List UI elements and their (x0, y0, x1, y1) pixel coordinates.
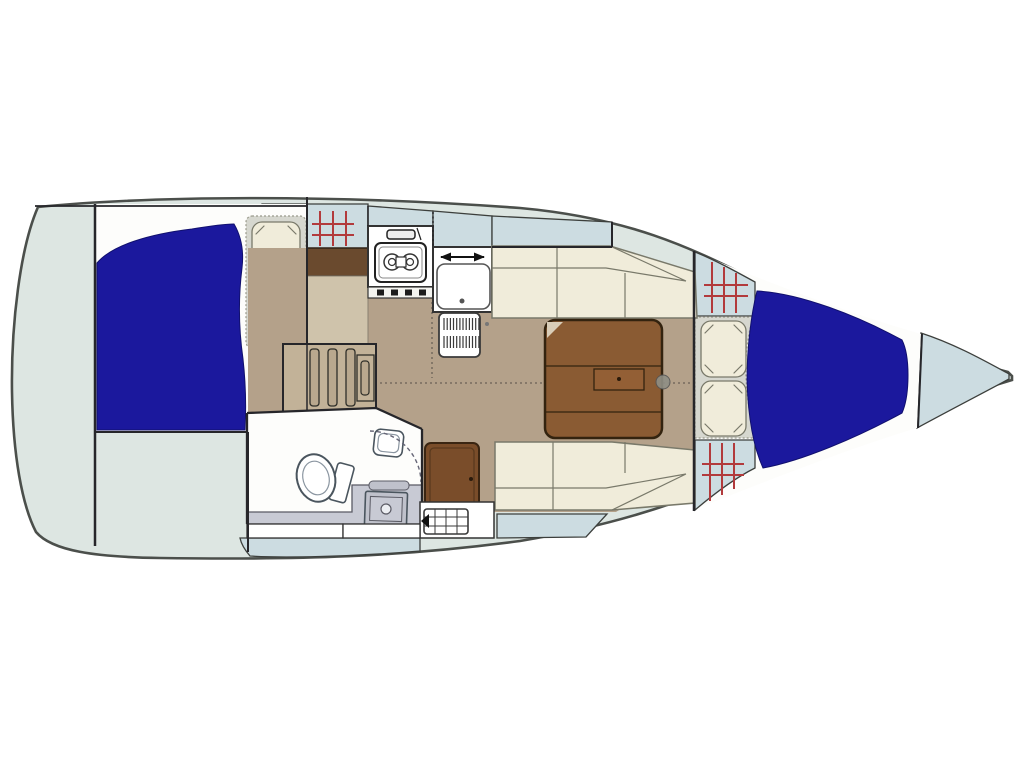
salon-table (545, 320, 670, 438)
deck-band-below-settee (497, 514, 607, 538)
boat-floor-plan (0, 0, 1024, 768)
v-berth-pillow-2 (701, 381, 746, 436)
aft-cabin-entry-step (307, 276, 368, 344)
galley-counter-bar (307, 248, 368, 276)
deck-band-over-sink (433, 211, 492, 247)
table-latch (656, 375, 670, 389)
settee-bottom (495, 442, 695, 510)
head-shower (373, 429, 405, 458)
deck-band-over-settee (492, 216, 612, 247)
sink-cover-knob (460, 299, 465, 304)
aft-double-berth (97, 224, 246, 430)
counter-lip (369, 481, 409, 490)
galley-hatch-panel (307, 204, 368, 250)
v-berth (747, 291, 908, 468)
head-sink (364, 491, 407, 526)
head-door-handle (469, 477, 473, 481)
step-slat-2 (328, 349, 337, 406)
anchor-locker (917, 333, 1009, 428)
forward-cabin (695, 252, 922, 510)
companionway-steps (283, 344, 376, 412)
latch-dot (485, 322, 489, 326)
step-slat-1 (310, 349, 319, 406)
head-compartment (247, 408, 422, 527)
lower-step-slat (361, 361, 369, 395)
table-drawer-knob (617, 377, 621, 381)
stowage-locker-1 (247, 524, 343, 538)
stowage-locker-2 (343, 524, 420, 538)
v-berth-pillow-1 (701, 321, 746, 377)
step-slat-3 (346, 349, 355, 406)
